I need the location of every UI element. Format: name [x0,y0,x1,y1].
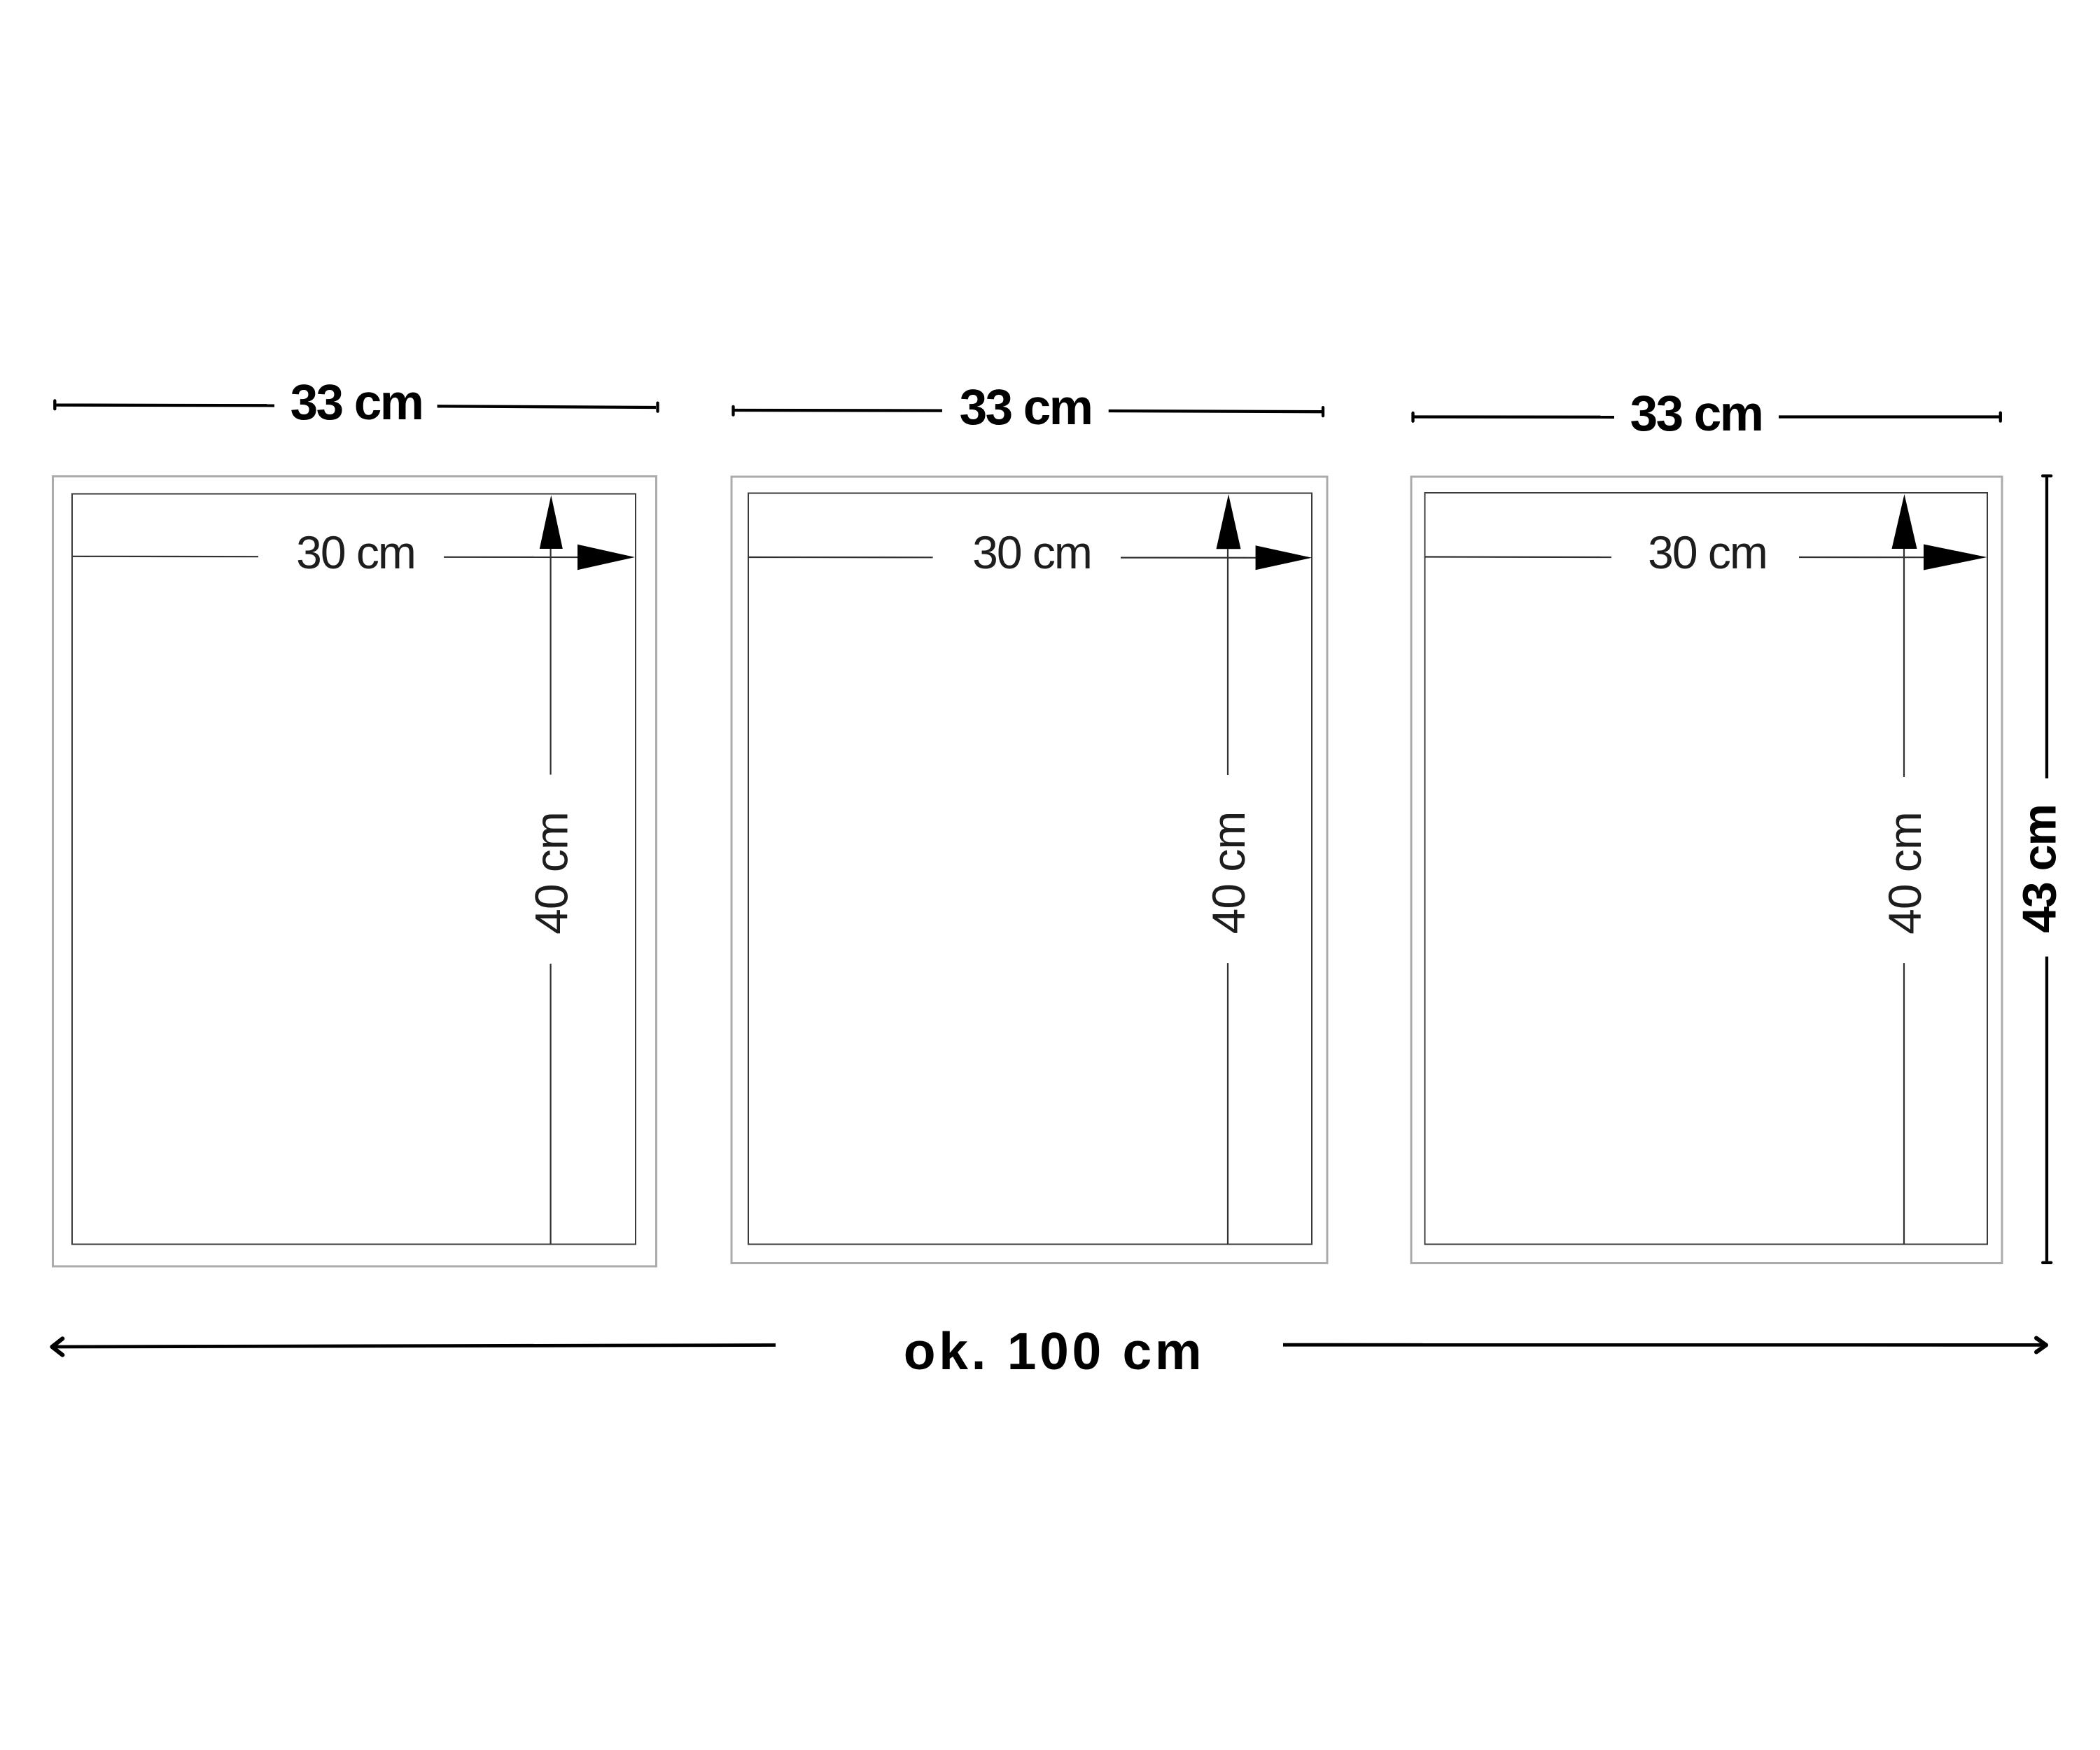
svg-text:30 cm: 30 cm [1648,526,1767,578]
svg-text:30 cm: 30 cm [972,526,1091,578]
svg-text:33 cm: 33 cm [290,375,423,430]
svg-text:40 cm: 40 cm [1203,812,1254,934]
svg-text:30 cm: 30 cm [296,526,415,578]
svg-text:43 cm: 43 cm [2013,805,2066,933]
svg-text:40 cm: 40 cm [1879,812,1931,934]
svg-text:ok. 100 cm: ok. 100 cm [904,1322,1205,1380]
svg-text:33 cm: 33 cm [960,380,1092,435]
svg-text:40 cm: 40 cm [525,812,577,934]
svg-text:33 cm: 33 cm [1630,386,1763,442]
